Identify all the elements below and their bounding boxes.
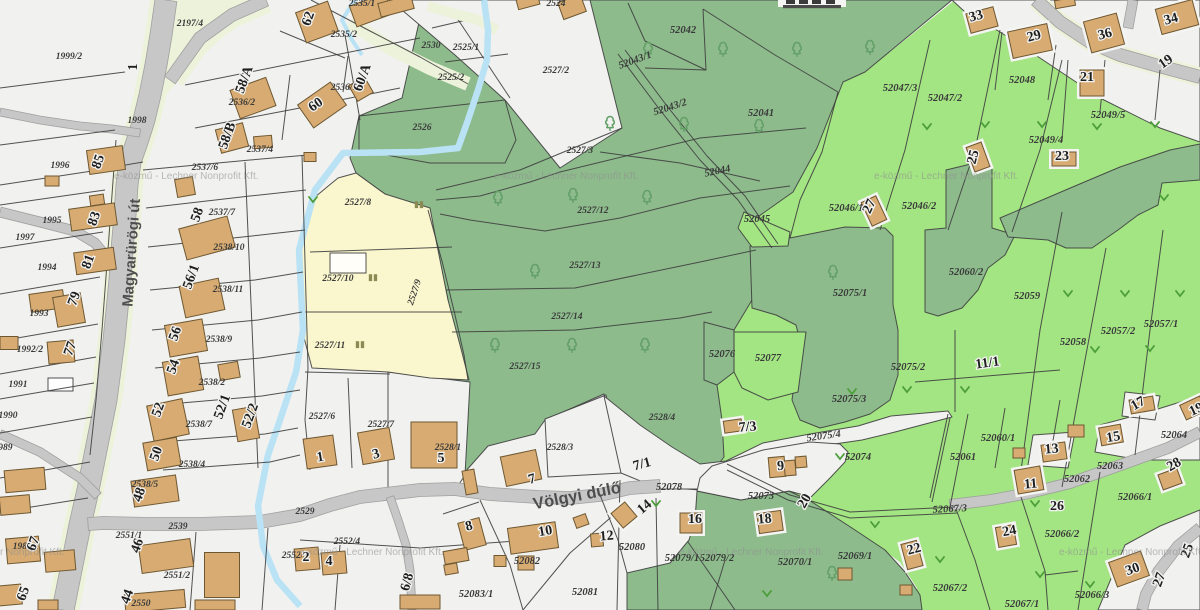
- svg-text:52049/4: 52049/4: [1029, 135, 1063, 146]
- svg-text:18: 18: [757, 511, 772, 527]
- svg-text:2527/10: 2527/10: [321, 274, 353, 284]
- svg-text:▮▮: ▮▮: [355, 339, 365, 349]
- svg-text:52047/3: 52047/3: [883, 83, 917, 94]
- svg-text:52062: 52062: [1064, 474, 1091, 485]
- svg-text:52049/5: 52049/5: [1091, 110, 1125, 121]
- svg-text:2552/4: 2552/4: [333, 537, 361, 547]
- svg-text:2538/11: 2538/11: [212, 285, 244, 295]
- svg-text:2527/15: 2527/15: [508, 362, 540, 372]
- svg-text:23: 23: [1055, 149, 1069, 164]
- svg-text:2197/4: 2197/4: [176, 19, 204, 29]
- svg-text:52082: 52082: [514, 556, 541, 567]
- svg-text:52075/3: 52075/3: [832, 394, 866, 405]
- svg-text:2527/3: 2527/3: [566, 146, 594, 156]
- svg-text:52067/3: 52067/3: [932, 503, 967, 516]
- svg-text:e-közmű - Lechner Nonprofit Kf: e-közmű - Lechner Nonprofit Kft.: [0, 547, 65, 558]
- svg-text:52064: 52064: [1161, 430, 1187, 441]
- svg-text:2535/2: 2535/2: [330, 30, 358, 40]
- svg-text:2528/4: 2528/4: [648, 413, 676, 423]
- svg-text:52081: 52081: [572, 587, 598, 598]
- svg-text:e-közmű - Lechner Nonprofit Kf: e-közmű - Lechner Nonprofit Kft.: [299, 547, 444, 558]
- svg-text:24: 24: [1001, 523, 1017, 540]
- svg-text:52075/1: 52075/1: [833, 288, 867, 299]
- svg-text:52083/1: 52083/1: [459, 589, 493, 600]
- svg-text:52060/1: 52060/1: [981, 433, 1015, 444]
- svg-text:2527/12: 2527/12: [576, 206, 608, 216]
- svg-text:52076: 52076: [709, 349, 736, 360]
- svg-text:52080: 52080: [619, 542, 646, 553]
- svg-text:2529: 2529: [295, 507, 315, 517]
- svg-text:52045: 52045: [744, 214, 770, 225]
- svg-text:1990: 1990: [0, 411, 18, 421]
- svg-text:11: 11: [1023, 476, 1037, 492]
- svg-text:2527/8: 2527/8: [344, 198, 372, 208]
- svg-text:1991: 1991: [9, 380, 28, 390]
- svg-text:2530: 2530: [421, 41, 441, 51]
- svg-text:52067/1: 52067/1: [1005, 599, 1039, 610]
- svg-text:2527/2: 2527/2: [542, 66, 570, 76]
- svg-text:2528/3: 2528/3: [546, 443, 574, 453]
- svg-text:2538/9: 2538/9: [205, 335, 233, 345]
- svg-text:52073: 52073: [748, 491, 774, 502]
- svg-text:7/3: 7/3: [738, 419, 757, 436]
- svg-text:1993: 1993: [30, 309, 49, 319]
- svg-text:2538/10: 2538/10: [212, 243, 244, 253]
- svg-text:5: 5: [438, 451, 445, 466]
- svg-text:2538/2: 2538/2: [198, 378, 226, 388]
- svg-text:52069/1: 52069/1: [838, 551, 872, 562]
- svg-text:52077: 52077: [755, 353, 782, 364]
- svg-text:1992/2: 1992/2: [17, 345, 44, 355]
- svg-text:52067/2: 52067/2: [933, 583, 968, 594]
- svg-text:52066/1: 52066/1: [1118, 492, 1152, 503]
- svg-text:26: 26: [1050, 499, 1064, 514]
- svg-text:52063: 52063: [1097, 461, 1123, 472]
- svg-text:2527/11: 2527/11: [314, 341, 346, 351]
- svg-text:52047/2: 52047/2: [928, 93, 963, 104]
- svg-text:12: 12: [599, 528, 614, 544]
- svg-text:2551/2: 2551/2: [163, 571, 191, 581]
- svg-text:1997: 1997: [16, 233, 36, 243]
- svg-text:1: 1: [126, 64, 141, 71]
- svg-text:52059: 52059: [1014, 291, 1041, 302]
- svg-text:2527/13: 2527/13: [568, 261, 600, 271]
- svg-text:9: 9: [777, 459, 785, 475]
- svg-text:2535/1: 2535/1: [348, 0, 375, 9]
- svg-text:52075/2: 52075/2: [891, 362, 926, 373]
- svg-text:1994: 1994: [38, 263, 57, 273]
- svg-text:2527/14: 2527/14: [550, 312, 582, 322]
- svg-text:1998: 1998: [128, 116, 147, 126]
- svg-text:52061: 52061: [950, 452, 976, 463]
- svg-text:e-közmű - Lechner Nonprofit Kf: e-közmű - Lechner Nonprofit Kft.: [494, 171, 639, 182]
- svg-text:52041: 52041: [748, 108, 774, 119]
- svg-text:2536/2: 2536/2: [228, 98, 256, 108]
- svg-text:2538/4: 2538/4: [178, 460, 206, 470]
- svg-text:2524: 2524: [546, 0, 566, 9]
- svg-text:2525/1: 2525/1: [452, 43, 479, 53]
- svg-text:52066/2: 52066/2: [1045, 529, 1080, 540]
- svg-text:2525/2: 2525/2: [437, 73, 465, 83]
- svg-text:e-közmű - Lechner Nonprofit Kf: e-közmű - Lechner Nonprofit Kft.: [679, 547, 824, 558]
- svg-text:52048: 52048: [1009, 75, 1036, 86]
- svg-text:2537/7: 2537/7: [208, 208, 237, 218]
- svg-text:52070/1: 52070/1: [778, 557, 812, 568]
- svg-text:13: 13: [1044, 441, 1059, 457]
- svg-text:16: 16: [688, 512, 702, 527]
- svg-text:21: 21: [1080, 70, 1094, 85]
- svg-text:15: 15: [1105, 429, 1121, 446]
- svg-text:2527/7: 2527/7: [367, 420, 396, 430]
- svg-text:1999/2: 1999/2: [56, 52, 83, 62]
- svg-text:1995: 1995: [43, 216, 62, 226]
- svg-text:52060/2: 52060/2: [949, 267, 984, 278]
- svg-text:e-közmű - Lechner Nonprofit Kf: e-közmű - Lechner Nonprofit Kft.: [114, 171, 259, 182]
- svg-text:52046/1: 52046/1: [829, 203, 863, 214]
- svg-text:2527/6: 2527/6: [308, 412, 336, 422]
- svg-text:▮▮: ▮▮: [368, 272, 378, 282]
- svg-text:e-közmű - Lechner Nonprofit Kf: e-közmű - Lechner Nonprofit Kft.: [874, 171, 1019, 182]
- svg-text:10: 10: [537, 523, 553, 540]
- svg-text:52057/2: 52057/2: [1101, 326, 1136, 337]
- svg-text:52046/2: 52046/2: [902, 201, 937, 212]
- svg-text:1989: 1989: [0, 443, 13, 453]
- svg-text:1996: 1996: [51, 161, 70, 171]
- svg-text:52078: 52078: [656, 482, 683, 493]
- svg-text:e-közmű - Lechner Nonprofit Kf: e-közmű - Lechner Nonprofit Kft.: [1059, 547, 1200, 558]
- svg-text:2537/4: 2537/4: [246, 145, 274, 155]
- svg-text:2526: 2526: [412, 123, 432, 133]
- svg-text:52074: 52074: [845, 452, 871, 463]
- svg-text:2538/7: 2538/7: [185, 420, 214, 430]
- svg-text:2539: 2539: [168, 522, 188, 532]
- svg-text:52066/3: 52066/3: [1075, 590, 1109, 601]
- svg-text:52058: 52058: [1060, 337, 1087, 348]
- svg-text:52042: 52042: [670, 25, 697, 36]
- svg-text:▮▮: ▮▮: [414, 199, 424, 209]
- svg-text:52057/1: 52057/1: [1144, 319, 1178, 330]
